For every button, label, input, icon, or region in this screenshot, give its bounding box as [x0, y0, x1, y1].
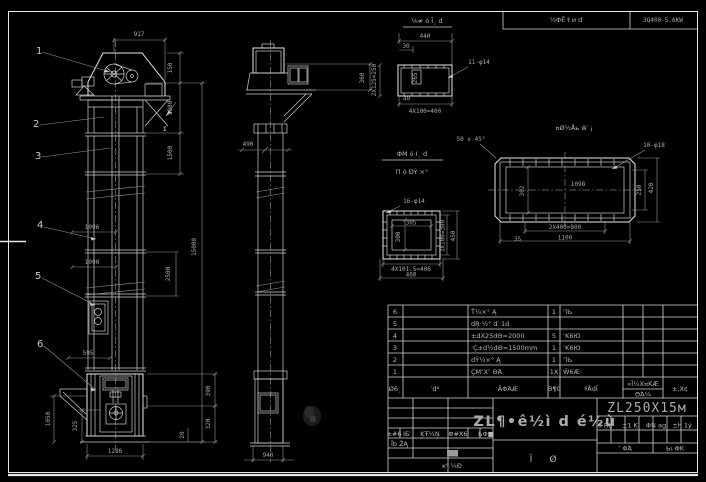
- dim-chamfer: 50 x 45°: [457, 136, 486, 143]
- callout-leaders: [40, 52, 110, 391]
- dim-390: 390: [205, 385, 212, 396]
- rev-header-cell: ЬΦ■: [478, 430, 494, 438]
- detail-c-holes: 16-φ14: [403, 198, 425, 205]
- rev-header-cell: ⅠБ′: [403, 430, 411, 438]
- bom-row-sn: 5: [393, 320, 397, 328]
- bom-header-sn: Ø6¸: [389, 385, 402, 393]
- bom-row-qty: 5: [552, 332, 556, 340]
- side-head: [246, 44, 316, 133]
- info-header-cell: ±h 1ý: [672, 422, 692, 430]
- info-header-cell: Ⅰб ŖĻ: [596, 422, 613, 431]
- bom-row: 2 dΫ¼×° Ą 1 ʻΊЬ: [393, 355, 572, 364]
- rev-header-cell: ±#6: [386, 430, 401, 438]
- dim-2500: 2500: [165, 266, 172, 281]
- sheet-left-label: ″ ΦΆ: [618, 445, 633, 453]
- dim-250: 250: [636, 184, 643, 195]
- bom-row-sn: 6: [393, 308, 397, 316]
- dim-320: 320: [205, 418, 212, 429]
- bom-row-material: Ŵ6Æ·: [563, 367, 582, 376]
- dim-2x400: 2X400=800: [549, 224, 582, 231]
- callout-4: 4: [37, 220, 43, 231]
- callout-3: 3: [35, 151, 41, 162]
- rev-bottom-label: ĸ⁰ ¼Ð: [442, 462, 462, 470]
- bom-row-material: ʼΚ6Ю: [563, 332, 580, 340]
- bom-row-name: dŖ·½° d′ 1d: [471, 320, 509, 329]
- bom-row: 1 ÇΜ″Χ″ ΘΆ 1Χ Ŵ6Æ·: [393, 367, 582, 376]
- sheet-mark-1: Ĭ: [529, 453, 533, 465]
- dim-305: 305: [406, 220, 417, 227]
- bom-row-sn: 2: [393, 356, 397, 364]
- detail-b-title: ¤Ø½Åь ŵ′ ¡: [555, 123, 592, 132]
- dim-420: 420: [648, 182, 655, 193]
- dim-490: 490: [243, 141, 254, 148]
- dim-1286: 1286: [108, 448, 123, 455]
- dim-595: 595: [83, 350, 94, 357]
- bom-row-name: dΫ¼×° Ą: [471, 355, 501, 364]
- bom-table: Ø6¸ ′d⁶ ÃΦΆÆ Θ¶0 ªÅdĪ «Ī¼Χ¤ΚÆ ΘΆ¼ ±,Χ¢ 6…: [388, 305, 697, 472]
- bom-row: 3 ·Ç±d½dΘ=1500mm 1 ʼΚ6Ю: [393, 344, 581, 352]
- callout-6: 6: [37, 339, 43, 350]
- bom-header-qty: Θ¶0: [547, 385, 560, 393]
- dim-1080: 1080: [167, 100, 174, 115]
- sheet-mark-2: Ø: [549, 454, 556, 465]
- bom-row: 5 dŖ·½° d′ 1d: [393, 320, 509, 329]
- bom-row-name: ±dΧ25dΘ=2000: [471, 332, 525, 340]
- motor-label: ½ΦÊ ŧ и d: [550, 15, 583, 24]
- dim-150: 150: [167, 62, 174, 73]
- title-block: ±#6 ⅠБ′ ĶŦ¼Ņ Φ#Χ6 ЬΦ■ Ĭb ŽĄ ĸ⁰ ¼Ð ZL¶•ê½…: [386, 398, 697, 472]
- detail-c-title-2: Π ó ĐÝ ×°: [396, 167, 428, 176]
- bom-header-weight-bottom: ΘΆ¼: [635, 391, 652, 399]
- bom-row-qty: 1: [552, 344, 556, 352]
- bom-row-name: Ť¼×° Ą: [470, 307, 497, 316]
- dim-15000: 15000: [191, 238, 198, 256]
- dim-265: 265: [412, 72, 419, 83]
- rev-header-cell: ĶŦ¼Ņ: [420, 430, 440, 439]
- bom-row-sn: 4: [393, 332, 397, 340]
- detail-outlet-flange: ¤Ø½Åь ŵ′ ¡ 50 x 45° 1098 10-φ18 302 250 …: [457, 123, 666, 244]
- section-label: I: [163, 126, 167, 133]
- bom-header-name: ÃΦΆÆ: [498, 384, 518, 393]
- detail-square-flange: ΦΜ ó Ι¸ d Π ó ĐÝ ×° 16-φ14 305 300 3X100…: [378, 150, 460, 281]
- dim-35: 35: [514, 236, 522, 243]
- dim-1050: 1050: [45, 411, 52, 426]
- motor-spec: 3Q400-5.6KW: [643, 17, 683, 24]
- bom-row-material: ʻΊЬ: [563, 308, 572, 316]
- rev-row-label: Ĭb ŽĄ: [390, 439, 409, 448]
- dim-360: 360: [359, 72, 366, 83]
- dim-1096: 1096: [85, 224, 100, 231]
- dim-460: 460: [406, 272, 417, 279]
- bom-row-qty: 1: [552, 308, 556, 316]
- dim-917: 917: [134, 31, 145, 38]
- dim-20: 20: [179, 431, 186, 439]
- side-boot: [250, 379, 290, 446]
- dim-2x125: 2X125=250: [371, 63, 378, 96]
- detail-b-holes: 10-φ18: [643, 142, 665, 149]
- detail-c-title-1: ΦΜ ó Ι¸ d: [397, 150, 427, 158]
- dim-325: 325: [72, 420, 79, 431]
- callout-5: 5: [35, 271, 41, 282]
- bom-row-sn: 1: [393, 368, 397, 376]
- dim-1100: 1100: [558, 235, 573, 242]
- bom-row-qty: 1Χ: [550, 368, 559, 376]
- highlighted-cell: [447, 450, 458, 457]
- callout-2: 2: [33, 119, 39, 130]
- dim-1098: 1098: [571, 181, 586, 188]
- rev-header-cell: Φ#Χ6: [448, 430, 467, 438]
- bom-header-code: ′d⁶: [431, 385, 440, 393]
- front-view-dimensions: 917 150 1080 1500 15000 2500 1096 1090 5…: [45, 31, 218, 460]
- bom-row-sn: 3: [393, 344, 397, 352]
- bom-row: 6 Ť¼×° Ą 1 ʻΊЬ: [393, 307, 572, 316]
- front-view: I: [33, 31, 218, 460]
- cad-canvas: ½ΦÊ ŧ и d 3Q400-5.6KW I: [0, 0, 706, 482]
- dim-3x100: 3X100=300: [440, 219, 447, 252]
- drawing-frame: [0, 12, 698, 476]
- bom-row-material: ʻΊЬ: [563, 356, 572, 364]
- head-section: [72, 53, 170, 126]
- info-header-cell: ΦΝ ag: [646, 422, 666, 430]
- detail-a-title: ⅛≠ ó Ī¸ d: [411, 16, 442, 25]
- dim-1500: 1500: [167, 145, 174, 160]
- smudge-artifact: [303, 406, 321, 426]
- bom-header-material: ªÅdĪ: [584, 384, 598, 393]
- callout-1: 1: [36, 46, 42, 57]
- dim-4x100: 4X100=400: [409, 108, 442, 115]
- dim-302: 302: [519, 185, 526, 196]
- bom-row-qty: 1: [552, 356, 556, 364]
- bom-row-name: ·Ç±d½dΘ=1500mm: [471, 344, 537, 352]
- bom-header-remark: ±,Χ¢: [672, 385, 688, 393]
- detail-inlet-flange: ⅛≠ ó Ī¸ d 440 30 265 40 11-φ14 2X125=250…: [371, 16, 490, 115]
- motor-spec-strip: ½ΦÊ ŧ и d 3Q400-5.6KW: [503, 12, 697, 29]
- info-header-cell: ±1 Ķ: [622, 422, 639, 431]
- dim-30: 30: [402, 43, 410, 50]
- bom-header-weight-top: «Ī¼Χ¤ΚÆ: [627, 379, 658, 388]
- bom-row-name: ÇΜ″Χ″ ΘΆ: [471, 368, 503, 376]
- dim-450: 450: [450, 230, 457, 241]
- dim-40: 40: [403, 96, 411, 103]
- dim-300: 300: [395, 231, 402, 242]
- bom-row-material: ʼΚ6Ю: [563, 344, 580, 352]
- side-view: 490 360 940: [238, 40, 372, 462]
- dim-940: 940: [263, 452, 274, 459]
- sheet-right-label: Ьι ΦΚ: [666, 445, 685, 453]
- bom-row: 4 ±dΧ25dΘ=2000 5 ʼΚ6Ю: [393, 332, 581, 340]
- detail-a-holes: 11-φ14: [468, 59, 490, 66]
- dim-440: 440: [420, 33, 431, 40]
- drawing-number: ZL250X15м: [607, 401, 686, 416]
- cad-drawing-screenshot: ½ΦÊ ŧ и d 3Q400-5.6KW I: [0, 0, 706, 482]
- dim-1090: 1090: [85, 259, 100, 266]
